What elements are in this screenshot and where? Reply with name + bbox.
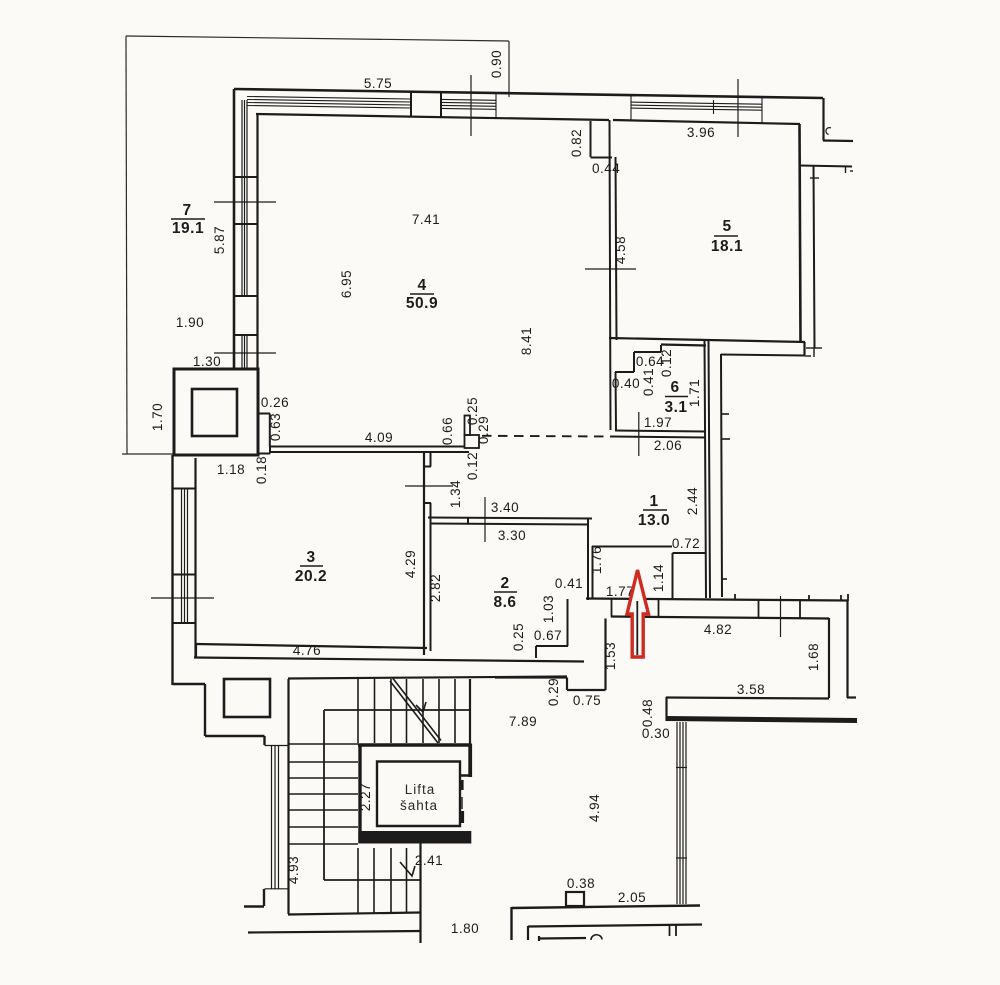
svg-text:1.18: 1.18 [217, 462, 245, 477]
svg-text:1.30: 1.30 [193, 354, 221, 369]
svg-text:0.41: 0.41 [555, 576, 583, 591]
svg-text:1.76: 1.76 [589, 546, 604, 574]
svg-text:3.30: 3.30 [498, 528, 526, 543]
svg-text:6: 6 [670, 379, 679, 396]
svg-text:2.44: 2.44 [685, 487, 700, 515]
svg-text:2.27: 2.27 [358, 783, 373, 811]
svg-text:0.40: 0.40 [612, 376, 640, 391]
svg-text:0.12: 0.12 [659, 349, 674, 377]
svg-text:0.38: 0.38 [567, 876, 595, 891]
svg-text:3.40: 3.40 [491, 500, 519, 515]
svg-text:1.71: 1.71 [687, 379, 702, 407]
svg-text:1.80: 1.80 [451, 921, 479, 936]
svg-text:3.96: 3.96 [687, 125, 715, 140]
svg-text:4: 4 [417, 277, 426, 294]
svg-text:0.44: 0.44 [592, 161, 620, 176]
svg-text:4.29: 4.29 [403, 550, 418, 578]
svg-text:2.41: 2.41 [415, 853, 443, 868]
svg-text:8.41: 8.41 [519, 327, 534, 355]
svg-text:50.9: 50.9 [406, 295, 438, 312]
svg-text:0.25: 0.25 [511, 623, 526, 651]
svg-text:1.34: 1.34 [448, 480, 463, 508]
svg-text:5.75: 5.75 [364, 76, 392, 91]
svg-text:5: 5 [722, 218, 731, 235]
svg-text:13.0: 13.0 [638, 512, 670, 529]
svg-text:šahta: šahta [400, 798, 438, 813]
svg-text:0.12: 0.12 [465, 452, 480, 480]
svg-text:1.53: 1.53 [603, 642, 618, 670]
svg-text:20.2: 20.2 [295, 568, 327, 585]
svg-text:0.41: 0.41 [641, 368, 656, 396]
svg-text:3.1: 3.1 [664, 399, 687, 416]
svg-text:0.66: 0.66 [440, 417, 455, 445]
svg-text:18.1: 18.1 [711, 238, 743, 255]
svg-text:Lifta: Lifta [405, 782, 436, 797]
svg-text:0.82: 0.82 [569, 129, 584, 157]
svg-text:0.48: 0.48 [640, 699, 655, 727]
svg-text:6.95: 6.95 [339, 270, 354, 298]
svg-text:0.18: 0.18 [254, 456, 269, 484]
svg-text:0.75: 0.75 [573, 693, 601, 708]
svg-text:1.97: 1.97 [644, 415, 672, 430]
svg-text:0.26: 0.26 [261, 395, 289, 410]
svg-text:0.29: 0.29 [546, 678, 561, 706]
svg-text:4.58: 4.58 [613, 236, 628, 264]
svg-text:0.72: 0.72 [672, 536, 700, 551]
svg-text:1.14: 1.14 [651, 564, 666, 592]
svg-text:5.87: 5.87 [212, 226, 227, 254]
svg-text:1.03: 1.03 [541, 595, 556, 623]
svg-text:4.94: 4.94 [587, 794, 602, 822]
svg-text:2.82: 2.82 [428, 574, 443, 602]
svg-text:2.05: 2.05 [618, 890, 646, 905]
svg-text:4.93: 4.93 [286, 856, 301, 884]
svg-text:0.29: 0.29 [476, 416, 491, 444]
svg-text:3: 3 [306, 549, 315, 566]
svg-text:4.82: 4.82 [704, 622, 732, 637]
svg-text:0.90: 0.90 [489, 50, 504, 78]
svg-text:1.68: 1.68 [806, 643, 821, 671]
svg-text:0.30: 0.30 [642, 726, 670, 741]
svg-text:19.1: 19.1 [172, 220, 204, 237]
svg-text:4.09: 4.09 [365, 430, 393, 445]
svg-text:3.58: 3.58 [737, 682, 765, 697]
svg-text:2.06: 2.06 [654, 438, 682, 453]
svg-text:2: 2 [500, 575, 509, 592]
svg-text:0.67: 0.67 [534, 628, 562, 643]
svg-text:7.89: 7.89 [509, 714, 537, 729]
svg-text:1.90: 1.90 [176, 315, 204, 330]
svg-text:0.63: 0.63 [268, 413, 283, 441]
svg-text:7: 7 [182, 202, 191, 219]
svg-text:1: 1 [649, 493, 658, 510]
svg-text:7.41: 7.41 [412, 212, 440, 227]
svg-text:8.6: 8.6 [493, 594, 516, 611]
svg-text:1.70: 1.70 [150, 403, 165, 431]
